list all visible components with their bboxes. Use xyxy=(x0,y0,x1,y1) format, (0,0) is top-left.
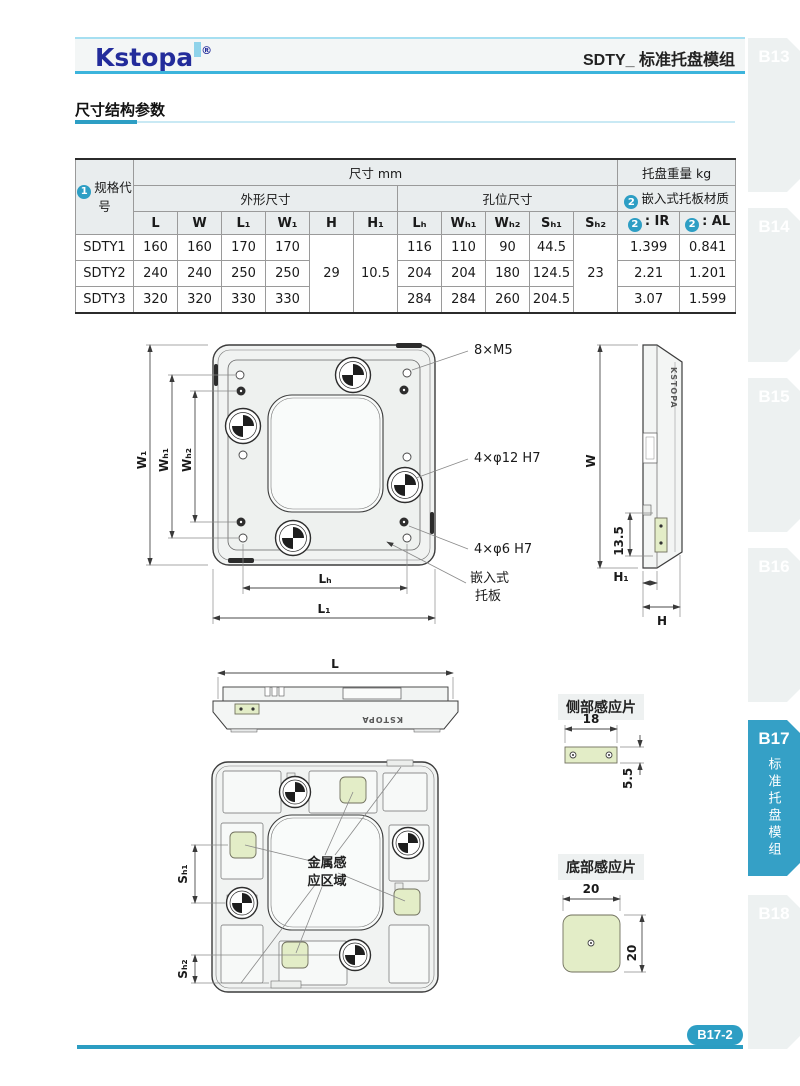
col-W: W xyxy=(178,212,222,235)
catalog-page: Kstopa® SDTY_ 标准托盘模组 尺寸结构参数 1规格代号 尺寸 mm … xyxy=(0,0,800,1086)
metal-zone-label-line1: 金属感 xyxy=(306,855,346,871)
cell: 180 xyxy=(486,261,530,287)
locating-pin-icon xyxy=(226,409,261,444)
metal-zone-label-line2: 应区域 xyxy=(307,873,346,889)
cell: 250 xyxy=(266,261,310,287)
col-L1: L₁ xyxy=(222,212,266,235)
cell: 204 xyxy=(398,261,442,287)
locating-pin-icon xyxy=(280,777,311,808)
cell: 160 xyxy=(178,235,222,261)
cell: 1.599 xyxy=(680,287,736,314)
cell: 44.5 xyxy=(530,235,574,261)
tab-label: B16 xyxy=(748,557,800,577)
material-header: 2嵌入式托板材质 xyxy=(618,186,736,212)
locating-pin-icon xyxy=(336,358,371,393)
col-Wh2: Wₕ₂ xyxy=(486,212,530,235)
locating-pin-icon xyxy=(393,828,424,859)
col-Sh1: Sₕ₁ xyxy=(530,212,574,235)
dim-H1: H₁ xyxy=(613,570,628,584)
dim-L1: L₁ xyxy=(318,602,331,616)
section-title: 尺寸结构参数 xyxy=(75,99,165,120)
col-W1: W₁ xyxy=(266,212,310,235)
dim-Sh2: Sₕ₂ xyxy=(176,959,190,978)
side-sensor-detail: 18 5.5 xyxy=(550,685,670,805)
spec-table: 1规格代号 尺寸 mm 托盘重量 kg 外形尺寸 孔位尺寸 2嵌入式托板材质 L… xyxy=(75,158,736,314)
callout-m5: 8×M5 xyxy=(474,343,513,358)
tab-B13[interactable]: B13 xyxy=(748,38,800,192)
molded-brand-text: KSTOPA xyxy=(669,367,678,409)
cell: 1.399 xyxy=(618,235,680,261)
col-Sh2: Sₕ₂ xyxy=(574,212,618,235)
bottom-sensor-detail: 20 20 xyxy=(550,875,680,1010)
dim-Wh2: Wₕ₂ xyxy=(180,448,194,472)
table-row: SDTY1 160 160 170 170 29 10.5 116 110 90… xyxy=(76,235,736,261)
dim-W: W xyxy=(584,454,598,467)
badge-2-icon: 2 xyxy=(624,195,638,209)
cell: 260 xyxy=(486,287,530,314)
tab-B17-active[interactable]: B17 标准托盘模组 xyxy=(748,720,800,876)
col-Lh: Lₕ xyxy=(398,212,442,235)
cell: 240 xyxy=(178,261,222,287)
dim-W1: W₁ xyxy=(135,451,149,470)
badge-2-icon: 2 xyxy=(685,218,699,232)
cell: 204 xyxy=(442,261,486,287)
brand-logo-text: Kstopa xyxy=(95,43,193,72)
cell: 170 xyxy=(222,235,266,261)
dim-20-h: 20 xyxy=(625,945,639,962)
tab-subtitle-vertical: 标准托盘模组 xyxy=(765,757,784,859)
cell-merged-H1: 10.5 xyxy=(354,235,398,314)
front-sensor-strip xyxy=(235,704,259,714)
section-underline-light xyxy=(137,121,735,123)
tab-B18[interactable]: B18 xyxy=(748,895,800,1049)
cell: 320 xyxy=(178,287,222,314)
cell: 3.07 xyxy=(618,287,680,314)
cell: 116 xyxy=(398,235,442,261)
dim-Wh1: Wₕ₁ xyxy=(157,448,171,472)
side-slot xyxy=(643,433,657,463)
al-label: : AL xyxy=(702,214,730,229)
cell: 330 xyxy=(222,287,266,314)
molded-brand-text: KSTOPA xyxy=(361,715,403,724)
locating-pin-icon xyxy=(227,888,258,919)
callout-d6: 4×φ6 H7 xyxy=(474,542,532,557)
cell: 320 xyxy=(134,287,178,314)
registered-mark: ® xyxy=(201,44,212,57)
col-Wh1: Wₕ₁ xyxy=(442,212,486,235)
locating-pin-icon xyxy=(340,940,371,971)
page-title: SDTY_ 标准托盘模组 xyxy=(583,46,735,70)
row-code: SDTY1 xyxy=(76,235,134,261)
row-code: SDTY2 xyxy=(76,261,134,287)
dim-H: H xyxy=(657,614,667,628)
spec-code-label: 规格代号 xyxy=(94,180,132,214)
tab-label: B17 xyxy=(748,729,800,749)
cell: 0.841 xyxy=(680,235,736,261)
table-header-row-subgroups: 外形尺寸 孔位尺寸 2嵌入式托板材质 xyxy=(76,186,736,212)
row-code: SDTY3 xyxy=(76,287,134,314)
col-L: L xyxy=(134,212,178,235)
ir-label: : IR xyxy=(645,214,670,229)
weight-group-header: 托盘重量 kg xyxy=(618,159,736,186)
table-header-row-groups: 1规格代号 尺寸 mm 托盘重量 kg xyxy=(76,159,736,186)
dim-18: 18 xyxy=(583,712,600,726)
front-notch xyxy=(343,688,401,699)
cell: 240 xyxy=(134,261,178,287)
cell: 1.201 xyxy=(680,261,736,287)
section-underline-dark xyxy=(75,120,137,124)
col-IR: 2: IR xyxy=(618,212,680,235)
badge-2-icon: 2 xyxy=(628,218,642,232)
material-label: 嵌入式托板材质 xyxy=(641,191,729,206)
locating-pin-icon xyxy=(388,468,423,503)
brand-logo: Kstopa® xyxy=(95,42,212,72)
table-header-row-columns: L W L₁ W₁ H H₁ Lₕ Wₕ₁ Wₕ₂ Sₕ₁ Sₕ₂ 2: IR … xyxy=(76,212,736,235)
callout-d12: 4×φ12 H7 xyxy=(474,451,540,466)
dim-Sh1: Sₕ₁ xyxy=(176,864,190,883)
callout-tray-line1: 嵌入式 xyxy=(470,571,509,586)
cell: 330 xyxy=(266,287,310,314)
cell: 284 xyxy=(442,287,486,314)
cell: 284 xyxy=(398,287,442,314)
front-view-drawing: L KSTOPA xyxy=(195,655,485,750)
footer-rule xyxy=(77,1045,743,1049)
tab-label: B14 xyxy=(748,217,800,237)
tab-label: B13 xyxy=(748,47,800,67)
dim-13-5: 13.5 xyxy=(612,526,626,556)
page-number-badge: B17-2 xyxy=(687,1025,743,1045)
cell-merged-Sh2: 23 xyxy=(574,235,618,314)
col-AL: 2: AL xyxy=(680,212,736,235)
tab-B15[interactable]: B15 xyxy=(748,378,800,532)
cell: 170 xyxy=(266,235,310,261)
side-view-drawing: KSTOPA W 13.5 H₁ H xyxy=(585,335,715,635)
cell: 124.5 xyxy=(530,261,574,287)
outer-dim-header: 外形尺寸 xyxy=(134,186,398,212)
locating-pin-icon xyxy=(276,521,311,556)
table-row: SDTY2 240 240 250 250 204 204 180 124.5 … xyxy=(76,261,736,287)
badge-1-icon: 1 xyxy=(77,185,91,199)
cell: 2.21 xyxy=(618,261,680,287)
cell-merged-H: 29 xyxy=(310,235,354,314)
col-H1: H₁ xyxy=(354,212,398,235)
callout-tray-line2: 托板 xyxy=(475,589,501,604)
col-H: H xyxy=(310,212,354,235)
dim-Lh: Lₕ xyxy=(318,572,331,586)
top-view-drawing: W₁ Wₕ₁ Wₕ₂ Lₕ L₁ 8×M5 4×φ12 H7 4×φ6 H7 嵌… xyxy=(140,332,560,632)
cell: 90 xyxy=(486,235,530,261)
cell: 110 xyxy=(442,235,486,261)
tab-B16[interactable]: B16 xyxy=(748,548,800,702)
spec-table-wrap: 1规格代号 尺寸 mm 托盘重量 kg 外形尺寸 孔位尺寸 2嵌入式托板材质 L… xyxy=(75,158,736,314)
dim-5-5: 5.5 xyxy=(621,768,635,789)
tab-label: B18 xyxy=(748,904,800,924)
table-row: SDTY3 320 320 330 330 284 284 260 204.5 … xyxy=(76,287,736,314)
cell: 204.5 xyxy=(530,287,574,314)
hole-dim-header: 孔位尺寸 xyxy=(398,186,618,212)
bottom-view-drawing: 金属感 应区域 Sₕ₁ Sₕ₂ xyxy=(175,755,505,1017)
tab-B14[interactable]: B14 xyxy=(748,208,800,362)
side-sensor-strip xyxy=(655,518,667,552)
cell: 160 xyxy=(134,235,178,261)
spec-code-header: 1规格代号 xyxy=(76,159,134,235)
cell: 250 xyxy=(222,261,266,287)
dim-20-w: 20 xyxy=(583,882,600,896)
dim-L: L xyxy=(331,657,339,671)
tab-label: B15 xyxy=(748,387,800,407)
dim-group-header: 尺寸 mm xyxy=(134,159,618,186)
